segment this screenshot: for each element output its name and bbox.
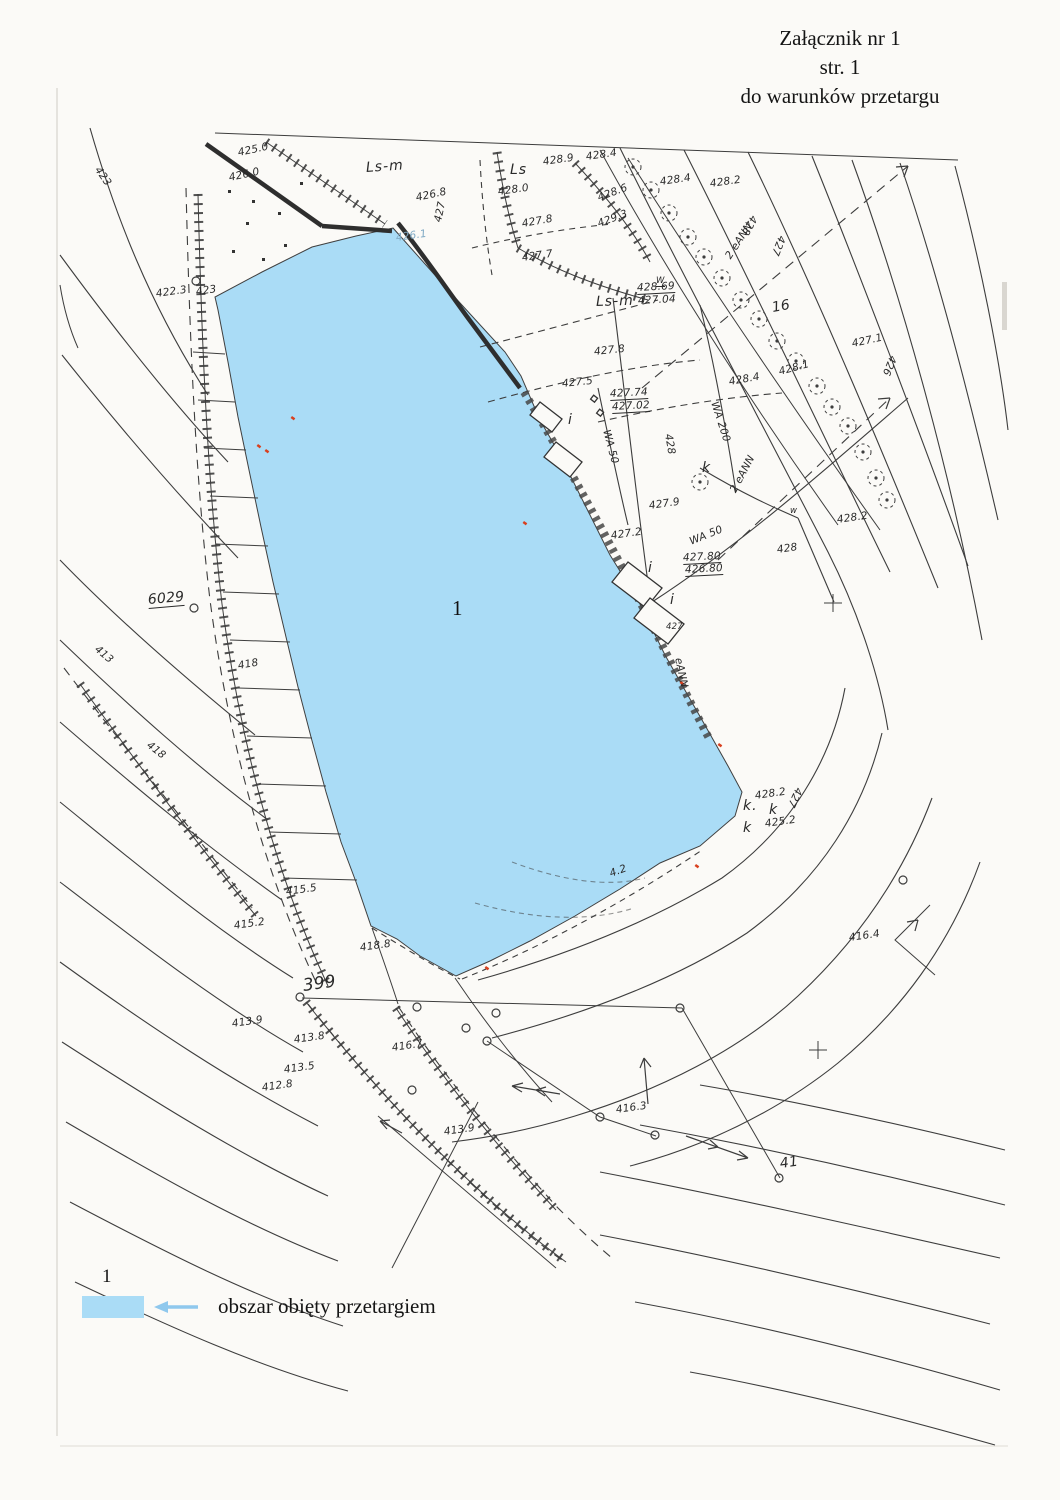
arrow xyxy=(380,1120,402,1133)
orchard-dot xyxy=(300,182,303,185)
groyne xyxy=(257,784,326,786)
wall xyxy=(206,144,322,226)
contour-line xyxy=(700,1085,1005,1150)
survey-line xyxy=(302,998,682,1008)
groyne xyxy=(283,878,357,880)
rail-side-dash xyxy=(398,1006,612,1258)
survey-point xyxy=(775,1174,783,1182)
chain-rungs xyxy=(306,1002,566,1262)
dashed-line xyxy=(64,668,252,908)
contour-line xyxy=(60,640,268,820)
utility-line xyxy=(598,388,628,525)
chain-spine xyxy=(497,152,518,248)
groyne xyxy=(238,688,300,690)
groyne xyxy=(216,544,268,546)
tree-row-line xyxy=(600,150,838,525)
map-top-line xyxy=(215,133,958,160)
boundary-line xyxy=(700,468,798,518)
tree-center-dot xyxy=(631,165,634,168)
chain-spine xyxy=(518,248,648,300)
survey-line xyxy=(455,978,552,1102)
tree-center-dot xyxy=(846,424,849,427)
chain-rungs xyxy=(575,163,650,262)
arrow xyxy=(640,1058,651,1104)
tree-center-dot xyxy=(667,211,670,214)
arrowhead xyxy=(907,920,918,931)
tree-center-dot xyxy=(794,359,797,362)
tree-center-dot xyxy=(861,450,864,453)
tree-center-dot xyxy=(649,188,652,191)
orchard-dot xyxy=(246,222,249,225)
rail-side-dash xyxy=(308,1004,565,1262)
contour-line xyxy=(60,882,303,1052)
contour-line xyxy=(60,962,318,1126)
groyne xyxy=(210,496,258,498)
survey-point xyxy=(413,1003,421,1011)
powerline-dashed xyxy=(642,166,908,388)
contour-line xyxy=(955,166,1008,430)
tree-center-dot xyxy=(720,276,723,279)
tender-area-polygon xyxy=(215,228,742,976)
grid-cross xyxy=(824,594,842,612)
contour-line xyxy=(684,150,890,572)
contour-line xyxy=(600,1235,990,1324)
contour-line xyxy=(60,560,255,735)
orchard-dot xyxy=(228,190,231,193)
legend: 1 obszar obięty przetargiem xyxy=(82,1266,436,1319)
tree-center-dot xyxy=(874,476,877,479)
dashed-line xyxy=(480,300,658,347)
boundary-line xyxy=(613,298,650,598)
legend-swatch xyxy=(82,1296,144,1318)
crossing-line xyxy=(392,1102,478,1268)
contour-line xyxy=(62,1042,328,1196)
legend-area-number: 1 xyxy=(102,1266,436,1288)
groyne xyxy=(223,592,279,594)
survey-point xyxy=(899,876,907,884)
boundary-line xyxy=(652,398,908,602)
tree-center-dot xyxy=(775,339,778,342)
orchard-dot xyxy=(262,258,265,261)
tree-center-dot xyxy=(885,498,888,501)
survey-point xyxy=(296,993,304,1001)
scan-bar xyxy=(1002,282,1007,330)
contour-line xyxy=(748,152,938,588)
tree-center-dot xyxy=(698,480,701,483)
contour-line xyxy=(620,148,888,730)
groyne xyxy=(247,736,312,738)
survey-line xyxy=(372,928,398,1004)
crossing-line xyxy=(378,1116,556,1268)
legend-arrow-icon xyxy=(152,1299,204,1315)
survey-point xyxy=(492,1009,500,1017)
survey-point xyxy=(190,604,198,612)
tree-center-dot xyxy=(830,405,833,408)
slope-zigzag xyxy=(895,905,935,975)
chain-spine xyxy=(60,285,78,348)
survey-point xyxy=(192,277,200,285)
chain-rungs xyxy=(518,248,648,300)
dashed-line xyxy=(598,393,782,422)
small-marker xyxy=(591,395,598,402)
wall xyxy=(322,226,392,231)
contour-line xyxy=(900,163,998,520)
grid-cross xyxy=(809,1041,827,1059)
contour-line xyxy=(635,1302,1000,1390)
tree-center-dot xyxy=(757,317,760,320)
contour-line xyxy=(600,1172,1000,1258)
contour-line xyxy=(66,1122,338,1261)
contour-line xyxy=(90,128,208,395)
dashed-line xyxy=(480,160,492,275)
chain-rungs xyxy=(497,152,518,248)
tree-center-dot xyxy=(815,384,818,387)
survey-point xyxy=(408,1086,416,1094)
tree-center-dot xyxy=(739,298,742,301)
scanned-page: Załącznik nr 1 str. 1 do warunków przeta… xyxy=(0,0,1060,1500)
red-scan-mark xyxy=(718,743,723,747)
groyne xyxy=(269,832,341,834)
orchard-dot xyxy=(284,244,287,247)
boundary-line xyxy=(798,518,834,602)
contour-line xyxy=(690,1372,995,1445)
legend-label: obszar obięty przetargiem xyxy=(218,1294,436,1319)
tree-center-dot xyxy=(686,235,689,238)
orchard-dot xyxy=(278,212,281,215)
chain-spine xyxy=(306,1002,566,1262)
contour-line xyxy=(852,160,982,640)
contour-line xyxy=(60,722,282,900)
contour-line xyxy=(812,156,968,566)
groyne xyxy=(204,448,246,450)
orchard-dot xyxy=(232,250,235,253)
dashed-line xyxy=(472,224,612,248)
groyne xyxy=(193,352,225,354)
orchard-dot xyxy=(252,200,255,203)
survey-point xyxy=(462,1024,470,1032)
groyne xyxy=(230,640,290,642)
red-scan-mark xyxy=(695,864,700,868)
tree-center-dot xyxy=(702,255,705,258)
chain-rungs xyxy=(80,684,256,916)
